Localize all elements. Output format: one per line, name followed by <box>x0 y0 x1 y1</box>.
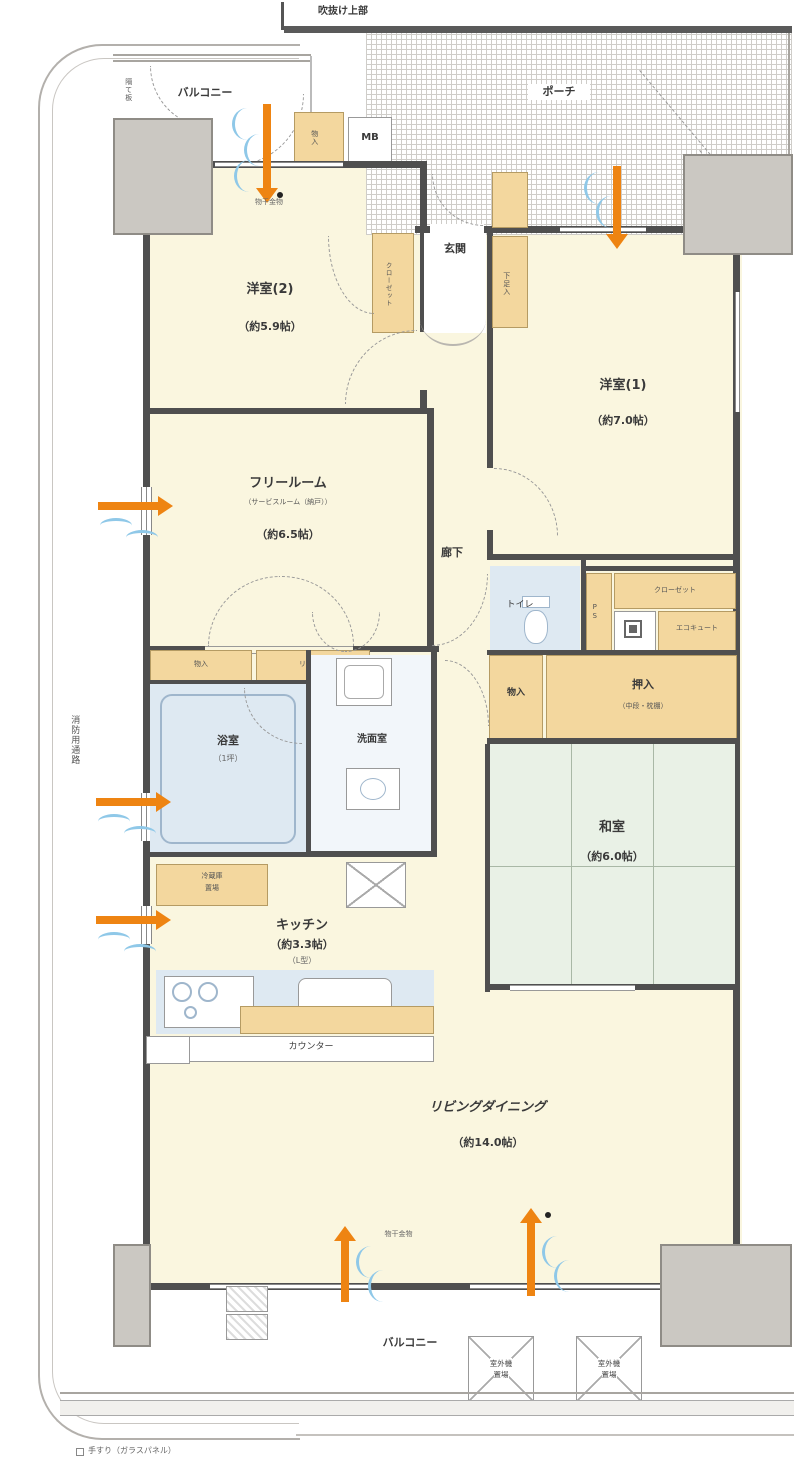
toilet-label: トイレ <box>494 600 546 611</box>
kitchen-note: （L型） <box>272 956 332 966</box>
counter-end-box <box>146 1036 190 1064</box>
window <box>141 487 152 535</box>
bath-size: （1坪） <box>204 754 252 764</box>
pillar <box>660 1244 792 1347</box>
burner <box>184 1006 197 1019</box>
washroom-label: 洗面室 <box>336 734 408 747</box>
free-room-note: （サービスルーム（納戸）） <box>208 498 368 507</box>
airflow-waves <box>100 518 132 533</box>
service-box <box>226 1286 268 1312</box>
entrance-step <box>420 292 486 346</box>
laundry-hook-dot <box>545 1212 551 1218</box>
legend-marker <box>76 1448 84 1456</box>
airflow-arrow <box>96 798 158 806</box>
porch-label: ポーチ <box>528 84 590 100</box>
basin-bowl <box>360 778 386 800</box>
partition-label: 隔て板 <box>124 58 133 122</box>
outer-bottom-line <box>296 1434 794 1436</box>
airflow-arrow-head <box>606 234 628 249</box>
wall <box>148 852 310 857</box>
fire-route-label: 消防用通路 <box>68 684 79 796</box>
balcony-rail-band <box>60 1400 794 1416</box>
linen-left-label: 物入 <box>150 660 252 669</box>
window <box>215 162 343 167</box>
wall <box>485 744 490 992</box>
meter-icon-inner <box>629 625 637 633</box>
western2-size: （約5.9帖） <box>210 320 330 334</box>
western2-name: 洋室(2) <box>215 282 325 298</box>
ecocute-label: エコキュート <box>658 624 736 633</box>
corridor-wall <box>284 26 792 33</box>
airflow-arrow <box>96 916 158 924</box>
door-gap <box>487 468 493 530</box>
closet2-label: クローゼット <box>384 238 392 330</box>
living-size: （約14.0帖） <box>428 1136 548 1150</box>
balcony-rail-line <box>60 1392 794 1394</box>
airflow-arrow <box>613 166 621 236</box>
wall <box>487 554 739 560</box>
washitsu-name: 和室 <box>582 820 642 836</box>
burner <box>198 982 218 1002</box>
wall <box>306 851 437 857</box>
laundry-top-label: 物干金物 <box>224 198 314 207</box>
airflow-waves <box>98 932 130 947</box>
tatami-line <box>571 744 572 986</box>
airflow-arrow <box>263 104 271 190</box>
bath-name: 浴室 <box>198 734 258 748</box>
pillar <box>113 1244 151 1347</box>
pipe-space-label: PS <box>590 586 599 638</box>
western1-size: （約7.0帖） <box>568 414 678 428</box>
airflow-waves <box>98 814 130 829</box>
balcony-rail <box>113 54 311 56</box>
wall <box>143 408 433 414</box>
window <box>560 227 646 232</box>
window <box>141 906 152 944</box>
window <box>735 292 740 412</box>
oshiire-box <box>546 655 737 740</box>
counter-label: カウンター <box>188 1042 434 1053</box>
entrance-label: 玄関 <box>430 242 480 256</box>
free-room-size: （約6.5帖） <box>228 528 348 542</box>
burner <box>172 982 192 1002</box>
washitsu-size: （約6.0帖） <box>562 850 662 864</box>
oshiire-note: （中段・枕棚） <box>588 702 698 711</box>
toilet-bowl <box>524 610 548 644</box>
outdoor-unit-label1: 室外機 <box>490 1358 513 1369</box>
laundry-bottom-label: 物干金物 <box>356 1230 441 1239</box>
washitsu-room <box>489 744 735 986</box>
monoire-label: 物入 <box>492 688 540 699</box>
kitchen-storage-box <box>346 862 406 908</box>
airflow-waves <box>124 826 156 841</box>
airflow-arrow-head <box>156 910 171 930</box>
kitchen-size: （約3.3帖） <box>248 938 356 952</box>
wall <box>581 566 739 571</box>
western1-name: 洋室(1) <box>568 378 678 394</box>
hall-label: 廊下 <box>428 546 476 560</box>
balcony-rail <box>113 60 311 62</box>
airflow-arrow <box>341 1240 349 1302</box>
airflow-arrow-head <box>158 496 173 516</box>
airflow-waves <box>126 530 158 545</box>
oshiire-label: 押入 <box>598 678 688 692</box>
airflow-waves <box>124 944 156 959</box>
kitchen-cabinet <box>240 1006 434 1034</box>
washer-pan-inner <box>344 665 384 699</box>
pillar <box>113 118 213 235</box>
tatami-line <box>489 866 735 867</box>
kitchen-name: キッチン <box>252 918 352 934</box>
outdoor-unit-label1: 室外機 <box>598 1358 621 1369</box>
outdoor-unit-label2: 置場 <box>494 1369 509 1380</box>
shoe-upper-box <box>492 172 528 228</box>
free-room-name: フリールーム <box>218 476 358 492</box>
handrail-note: 手すり（ガラスパネル） <box>88 1446 268 1456</box>
balcony-bottom-label: バルコニー <box>358 1336 462 1350</box>
shoe-cabinet-label: 下足入 <box>502 246 511 322</box>
tatami-line <box>653 744 654 986</box>
fridge-label1: 冷蔵庫 <box>156 872 268 881</box>
sliding-door <box>510 985 635 991</box>
fridge-label2: 置場 <box>156 884 268 893</box>
airflow-arrow-head <box>334 1226 356 1241</box>
airflow-arrow-head <box>156 792 171 812</box>
closet2-box <box>372 233 414 333</box>
void-upper-label: 吹抜け上部 <box>288 6 398 19</box>
living-name: リビングダイニング <box>400 1100 575 1116</box>
floor-plan: 吹抜け上部 ポーチ バルコニー 隔て板 物入 MB トイレ PS <box>0 0 800 1476</box>
meter-box-label: MB <box>348 132 392 145</box>
outdoor-unit-label2: 置場 <box>602 1369 617 1380</box>
wall <box>431 650 437 857</box>
airflow-arrow-head <box>520 1208 542 1223</box>
airflow-arrow <box>98 502 160 510</box>
door-gap <box>420 332 427 390</box>
closet1-label: クローゼット <box>616 586 734 595</box>
service-box <box>226 1314 268 1340</box>
pillar <box>683 154 793 255</box>
storage-top-box <box>294 112 344 164</box>
airflow-arrow <box>527 1222 535 1296</box>
storage-top-label: 物入 <box>310 118 319 158</box>
wall <box>143 161 150 1290</box>
